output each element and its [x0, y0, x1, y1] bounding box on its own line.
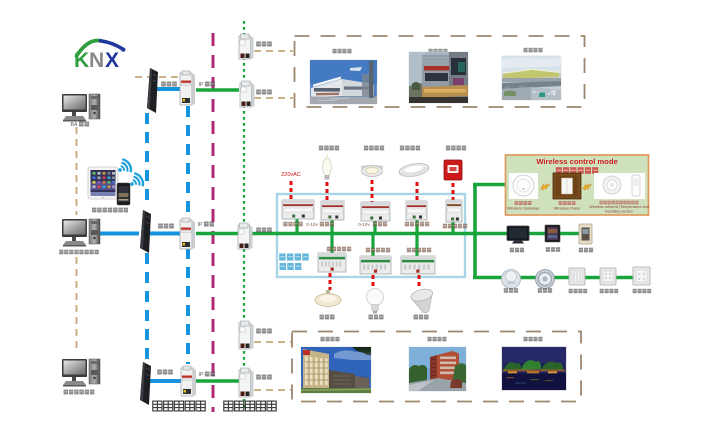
svg-text:220vAC: 220vAC	[281, 172, 301, 178]
svg-text:Wireless Panel: Wireless Panel	[554, 206, 581, 211]
svg-text:humidity) sensor: humidity) sensor	[605, 210, 634, 214]
svg-text:BA: BA	[71, 122, 78, 128]
svg-text:IP: IP	[198, 222, 203, 228]
svg-text:X: X	[105, 49, 119, 72]
svg-text:K: K	[74, 49, 89, 72]
svg-text:IP: IP	[199, 372, 204, 378]
svg-text:Wireless Gateway: Wireless Gateway	[507, 206, 539, 211]
svg-text:0-10v: 0-10v	[306, 222, 318, 227]
svg-text:Wireless control mode: Wireless control mode	[536, 157, 617, 166]
svg-text:Wireless Infrared (Temperature: Wireless Infrared (Temperature and	[589, 205, 649, 209]
svg-text:IP: IP	[199, 82, 204, 88]
svg-text:0-10v: 0-10v	[358, 222, 370, 227]
svg-text:N: N	[89, 49, 104, 72]
svg-text:®: ®	[121, 47, 126, 54]
